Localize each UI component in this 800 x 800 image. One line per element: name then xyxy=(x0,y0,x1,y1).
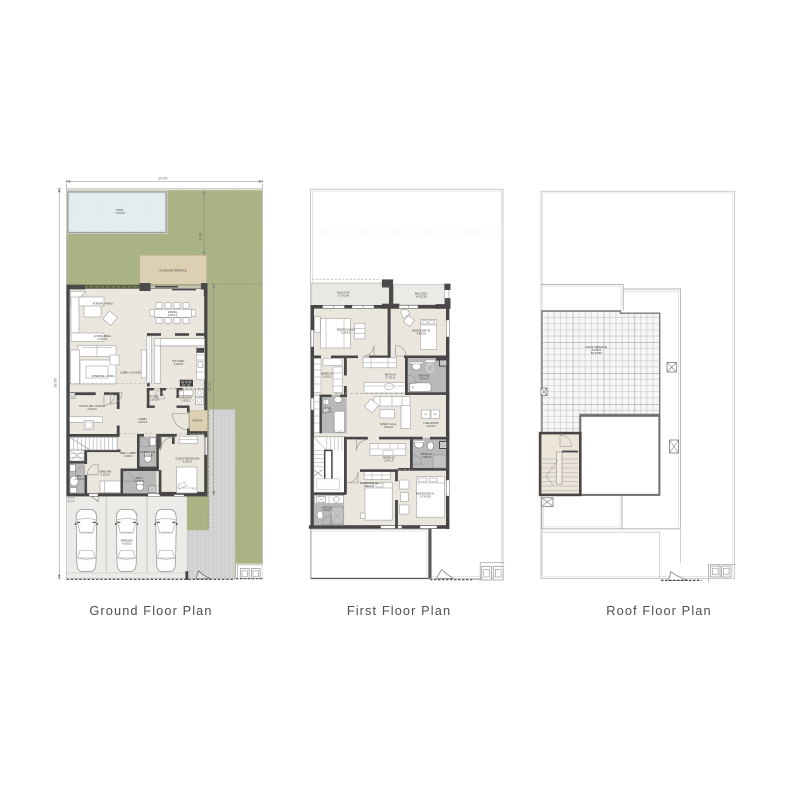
svg-text:28.50: 28.50 xyxy=(54,378,58,388)
svg-text:DINING3.6X1.2: DINING3.6X1.2 xyxy=(168,310,178,317)
svg-text:BALCONY4.1X1.55: BALCONY4.1X1.55 xyxy=(415,291,428,298)
svg-text:LOBBY4.0X1.5: LOBBY4.0X1.5 xyxy=(138,417,148,424)
svg-text:OUTDOOR TERRACE: OUTDOOR TERRACE xyxy=(159,269,186,273)
svg-text:WARD-041.6X2.5: WARD-041.6X2.5 xyxy=(321,371,334,378)
svg-text:KITCHEN3.2X3.8: KITCHEN3.2X3.8 xyxy=(173,359,185,366)
svg-text:PARKING6.0X5.5: PARKING6.0X5.5 xyxy=(121,539,133,546)
svg-text:Ground Floor Plan: Ground Floor Plan xyxy=(89,603,212,618)
svg-text:BALCONY5.7X1.60: BALCONY5.7X1.60 xyxy=(337,290,350,297)
svg-text:Roof Floor Plan: Roof Floor Plan xyxy=(606,603,711,618)
svg-text:WARD2.0X2.5: WARD2.0X2.5 xyxy=(323,407,333,414)
svg-text:14.00: 14.00 xyxy=(158,176,168,180)
svg-text:POOL7.0X3.0: POOL7.0X3.0 xyxy=(115,208,125,215)
svg-text:BATH-042.7X1.8: BATH-042.7X1.8 xyxy=(385,373,396,380)
svg-text:STORE1.5X1.5: STORE1.5X1.5 xyxy=(149,395,159,402)
svg-text:BATH-012.9X1.9: BATH-012.9X1.9 xyxy=(421,452,432,459)
svg-text:First Floor Plan: First Floor Plan xyxy=(347,603,451,618)
svg-text:3.80: 3.80 xyxy=(198,233,202,240)
svg-text:BATH-022.4X2.2: BATH-022.4X2.2 xyxy=(322,506,332,512)
svg-text:PORCH: PORCH xyxy=(192,419,202,423)
svg-text:LOBBY LOUNGE: LOBBY LOUNGE xyxy=(120,371,141,375)
svg-text:FORMAL FAMILY: FORMAL FAMILY xyxy=(93,302,114,306)
svg-text:BATH-033.8X1.9: BATH-033.8X1.9 xyxy=(419,374,430,381)
svg-text:WARD-022.9X1.2: WARD-022.9X1.2 xyxy=(383,455,396,462)
svg-text:15.70: 15.70 xyxy=(208,382,212,392)
svg-text:INTERNAL LIVING: INTERNAL LIVING xyxy=(92,374,115,378)
